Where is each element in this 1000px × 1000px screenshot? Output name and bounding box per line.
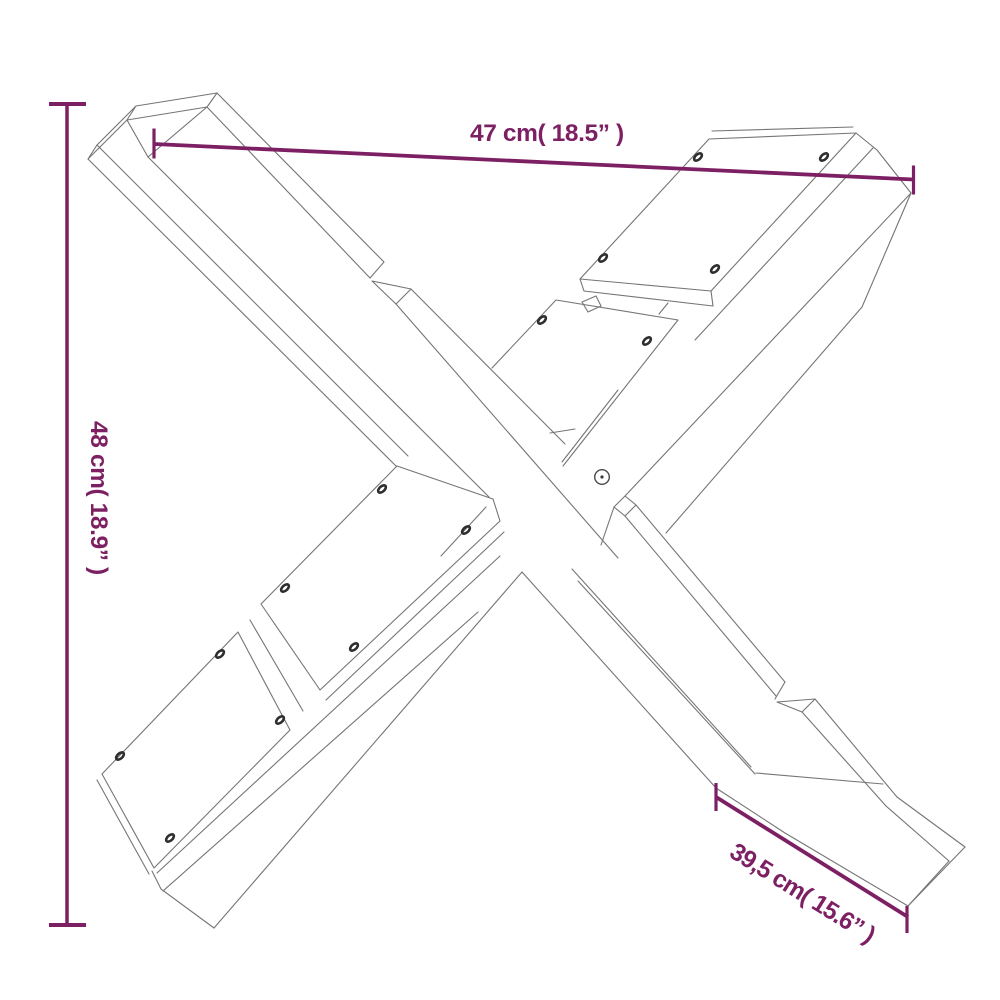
svg-text:48 cm( 18.9” ): 48 cm( 18.9” ) (85, 421, 112, 575)
svg-text:47 cm( 18.5” ): 47 cm( 18.5” ) (470, 120, 624, 147)
